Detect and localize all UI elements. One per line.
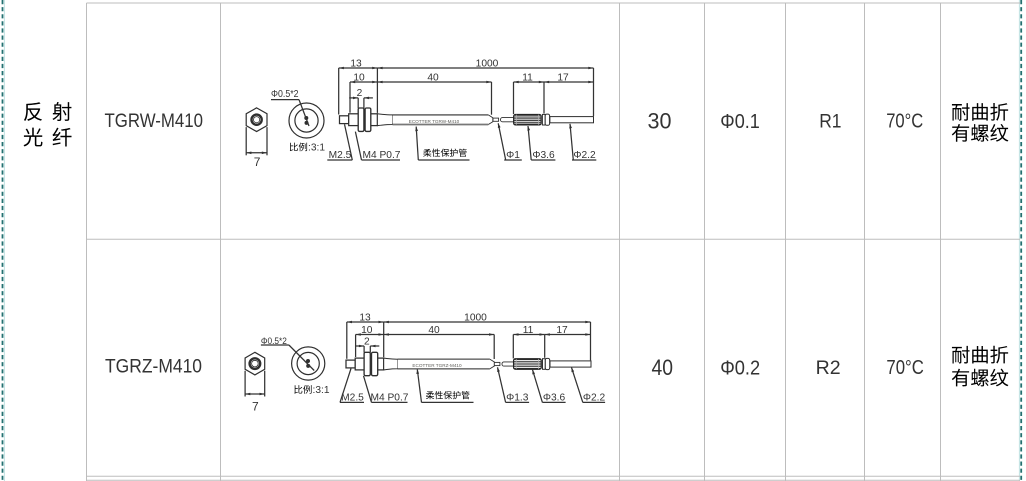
svg-text:1000: 1000	[476, 58, 499, 69]
svg-text:Φ0.2: Φ0.2	[720, 357, 760, 379]
svg-text:Φ2.2: Φ2.2	[573, 150, 596, 161]
svg-text:Φ3.6: Φ3.6	[543, 392, 566, 403]
svg-text:40: 40	[652, 355, 674, 380]
svg-text:Φ3.6: Φ3.6	[532, 150, 555, 161]
svg-text:1000: 1000	[464, 312, 487, 323]
svg-text:2: 2	[364, 336, 370, 347]
svg-text:70°C: 70°C	[886, 357, 923, 379]
svg-text:Φ0.5*2: Φ0.5*2	[261, 336, 287, 346]
svg-text:ECOTTER TGRW-M410: ECOTTER TGRW-M410	[409, 119, 460, 124]
svg-text:ECOTTER TGRZ-M410: ECOTTER TGRZ-M410	[412, 363, 462, 368]
svg-text:13: 13	[359, 312, 371, 323]
svg-text:10: 10	[361, 325, 373, 336]
svg-text:Φ2.2: Φ2.2	[583, 392, 606, 403]
svg-text:11: 11	[522, 72, 533, 83]
svg-text:M4 P0.7: M4 P0.7	[363, 150, 401, 161]
svg-text:Φ1: Φ1	[506, 150, 520, 161]
svg-text:Φ0.5*2: Φ0.5*2	[271, 89, 299, 100]
svg-text:2: 2	[357, 88, 363, 99]
svg-text:30: 30	[648, 108, 672, 133]
svg-text:11: 11	[523, 325, 534, 336]
svg-text:7: 7	[254, 155, 261, 169]
svg-text::3:1: :3:1	[308, 143, 325, 154]
svg-text:Φ0.1: Φ0.1	[720, 111, 760, 133]
svg-text:TGRW-M410: TGRW-M410	[105, 110, 204, 132]
svg-text::3:1: :3:1	[313, 385, 330, 396]
svg-text:M4 P0.7: M4 P0.7	[371, 392, 409, 403]
svg-text:M2.5: M2.5	[329, 150, 352, 161]
svg-text:7: 7	[252, 400, 259, 414]
svg-text:R2: R2	[816, 358, 841, 379]
svg-text:40: 40	[427, 72, 439, 83]
svg-text:40: 40	[428, 325, 440, 336]
svg-text:17: 17	[557, 72, 569, 83]
svg-text:M2.5: M2.5	[341, 392, 364, 403]
svg-text:10: 10	[353, 72, 365, 83]
svg-text:R1: R1	[819, 111, 841, 132]
svg-text:13: 13	[350, 58, 362, 69]
svg-text:TGRZ-M410: TGRZ-M410	[105, 355, 202, 377]
svg-text:17: 17	[556, 325, 568, 336]
svg-text:Φ1.3: Φ1.3	[506, 392, 529, 403]
svg-text:70°C: 70°C	[886, 110, 923, 132]
